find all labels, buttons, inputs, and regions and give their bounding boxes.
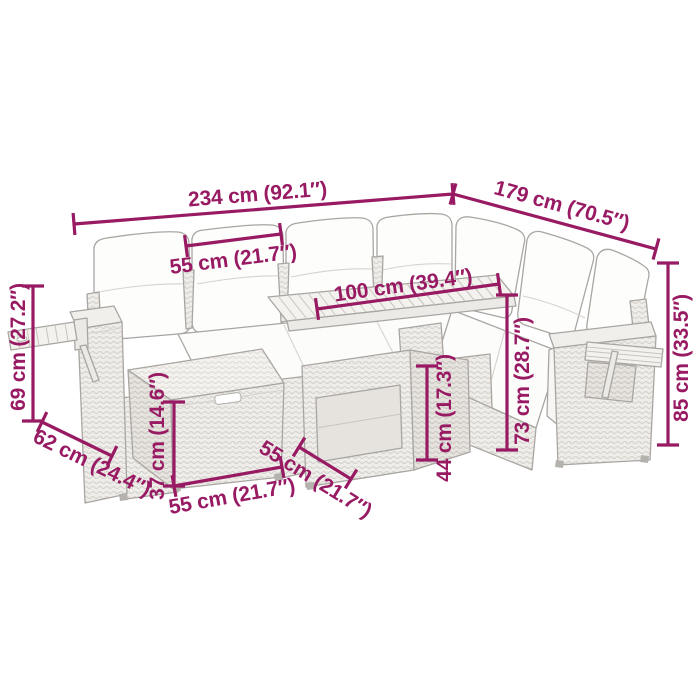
dim-label-44: 44 cm (17.3″)	[433, 354, 456, 482]
dim-label-69: 69 cm (27.2″)	[7, 283, 30, 411]
dimension-diagram: 234 cm (92.1″) 179 cm (70.5″) 55 cm (21.…	[0, 0, 700, 700]
dim-armrest-tray-height: 69 cm (27.2″)	[7, 283, 44, 421]
diagram-canvas: 234 cm (92.1″) 179 cm (70.5″) 55 cm (21.…	[0, 0, 700, 700]
table-shelf-recess	[316, 385, 402, 462]
dim-label-85: 85 cm (33.5″)	[670, 294, 693, 422]
dim-label-73: 73 cm (28.7″)	[511, 317, 534, 445]
dim-label-37: 37 cm (14.6″)	[146, 372, 169, 500]
dim-label-179: 179 cm (70.5″)	[492, 176, 632, 235]
